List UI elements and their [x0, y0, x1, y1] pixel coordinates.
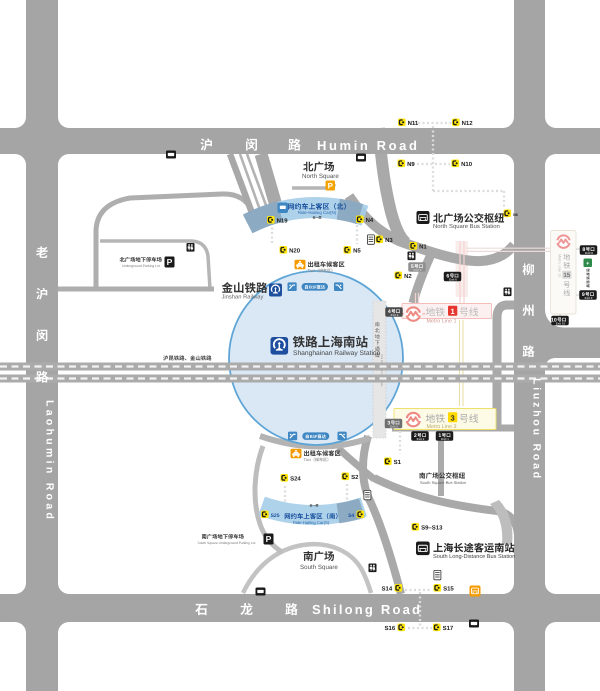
- svg-text:Metro Line 3: Metro Line 3: [427, 424, 457, 430]
- svg-text:North Square Bus Station: North Square Bus Station: [433, 223, 500, 230]
- svg-text:15: 15: [563, 272, 570, 279]
- svg-text:S17: S17: [443, 625, 454, 632]
- svg-text:North Square: North Square: [302, 173, 339, 180]
- svg-text:S1: S1: [394, 459, 402, 466]
- svg-text:N3: N3: [385, 237, 393, 244]
- svg-text:S4: S4: [348, 513, 354, 519]
- svg-text:Exit 1: Exit 1: [441, 437, 449, 441]
- svg-text:South Square Bus Station: South Square Bus Station: [420, 480, 466, 485]
- svg-text:N5: N5: [353, 247, 361, 254]
- svg-text:Humin Road: Humin Road: [317, 138, 420, 153]
- svg-text:N20: N20: [289, 247, 301, 254]
- svg-text:Underground Parking Lot: Underground Parking Lot: [122, 264, 160, 268]
- svg-text:N4: N4: [366, 217, 374, 224]
- svg-text:+: +: [586, 261, 589, 267]
- svg-text:South Long-Distance Bus Statio: South Long-Distance Bus Station: [433, 553, 515, 560]
- svg-text:N1: N1: [419, 243, 427, 250]
- svg-text:Exit 10: Exit 10: [556, 322, 566, 326]
- svg-text:Ride-Hailing Car(S): Ride-Hailing Car(S): [293, 520, 330, 525]
- svg-text:N2: N2: [404, 273, 412, 280]
- svg-text:B1F: B1F: [310, 434, 318, 439]
- svg-text:B1F: B1F: [309, 285, 317, 290]
- svg-text:N11: N11: [408, 120, 419, 127]
- svg-text:N9: N9: [407, 161, 415, 168]
- svg-text:S16: S16: [385, 625, 396, 632]
- svg-text:Shilong Road: Shilong Road: [312, 602, 422, 617]
- svg-text:Exit 8: Exit 8: [585, 251, 593, 255]
- svg-text:Jinshan Railway: Jinshan Railway: [222, 294, 264, 301]
- svg-text:Liuzhou Road: Liuzhou Road: [531, 378, 543, 481]
- svg-text:Metro Line 15: Metro Line 15: [558, 254, 562, 277]
- svg-text:Taxi: Taxi: [308, 268, 316, 273]
- svg-text:S9–S13: S9–S13: [421, 524, 443, 531]
- svg-text:Exit 3: Exit 3: [390, 425, 398, 429]
- svg-text:Laohumin Road: Laohumin Road: [44, 400, 56, 522]
- svg-text:S25: S25: [271, 513, 280, 519]
- svg-text:N6: N6: [513, 213, 518, 217]
- svg-text:Exit 6: Exit 6: [449, 278, 457, 282]
- svg-text:Taxi: Taxi: [304, 457, 312, 462]
- svg-text:South Square Underground Parki: South Square Underground Parking Lot: [198, 541, 256, 545]
- svg-text:3: 3: [450, 413, 454, 422]
- svg-text:S15: S15: [443, 585, 454, 592]
- svg-text:S14: S14: [382, 585, 393, 592]
- svg-text:Exit 2: Exit 2: [417, 437, 425, 441]
- svg-text:Exit 5: Exit 5: [414, 268, 422, 272]
- svg-text:Exit 9: Exit 9: [585, 296, 593, 300]
- svg-text:Metro Line 1: Metro Line 1: [427, 319, 457, 325]
- svg-text:S2: S2: [351, 474, 359, 481]
- svg-text:Shanghainan Railway Station: Shanghainan Railway Station: [293, 350, 381, 357]
- svg-text:South Square: South Square: [300, 564, 338, 571]
- svg-text:Ride-Hailing Car(N): Ride-Hailing Car(N): [298, 210, 337, 215]
- svg-text:N19: N19: [277, 217, 289, 224]
- svg-text:S24: S24: [290, 475, 301, 482]
- svg-text:N10: N10: [461, 161, 473, 168]
- svg-text:N12: N12: [462, 120, 474, 127]
- svg-text:Exit 4: Exit 4: [391, 313, 399, 317]
